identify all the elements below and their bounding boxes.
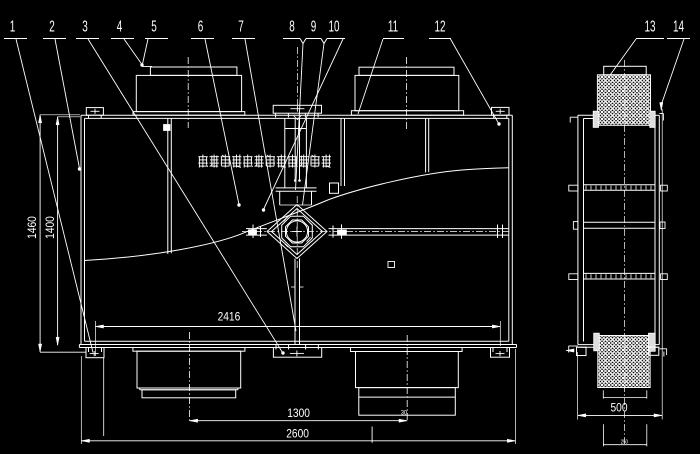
svg-text:14: 14 <box>673 17 684 35</box>
svg-text:10: 10 <box>328 17 339 35</box>
svg-text:12: 12 <box>434 17 445 35</box>
svg-text:1300: 1300 <box>287 407 310 420</box>
svg-text:30: 30 <box>401 410 408 416</box>
svg-text:2: 2 <box>49 17 55 35</box>
svg-text:2416: 2416 <box>218 311 241 324</box>
svg-text:5: 5 <box>151 17 157 35</box>
svg-text:6: 6 <box>198 17 204 35</box>
svg-text:8: 8 <box>289 17 295 35</box>
svg-text:7: 7 <box>238 17 244 35</box>
svg-text:9: 9 <box>311 17 317 35</box>
svg-text:4: 4 <box>117 17 123 35</box>
svg-text:2600: 2600 <box>286 428 309 441</box>
svg-text:1: 1 <box>10 17 16 35</box>
svg-text:13: 13 <box>644 17 655 35</box>
svg-text:500: 500 <box>610 402 627 415</box>
svg-text:11: 11 <box>388 17 398 35</box>
svg-text:3: 3 <box>82 17 88 35</box>
svg-text:250: 250 <box>621 439 628 444</box>
svg-text:1400: 1400 <box>44 216 57 239</box>
svg-text:1460: 1460 <box>27 216 40 239</box>
